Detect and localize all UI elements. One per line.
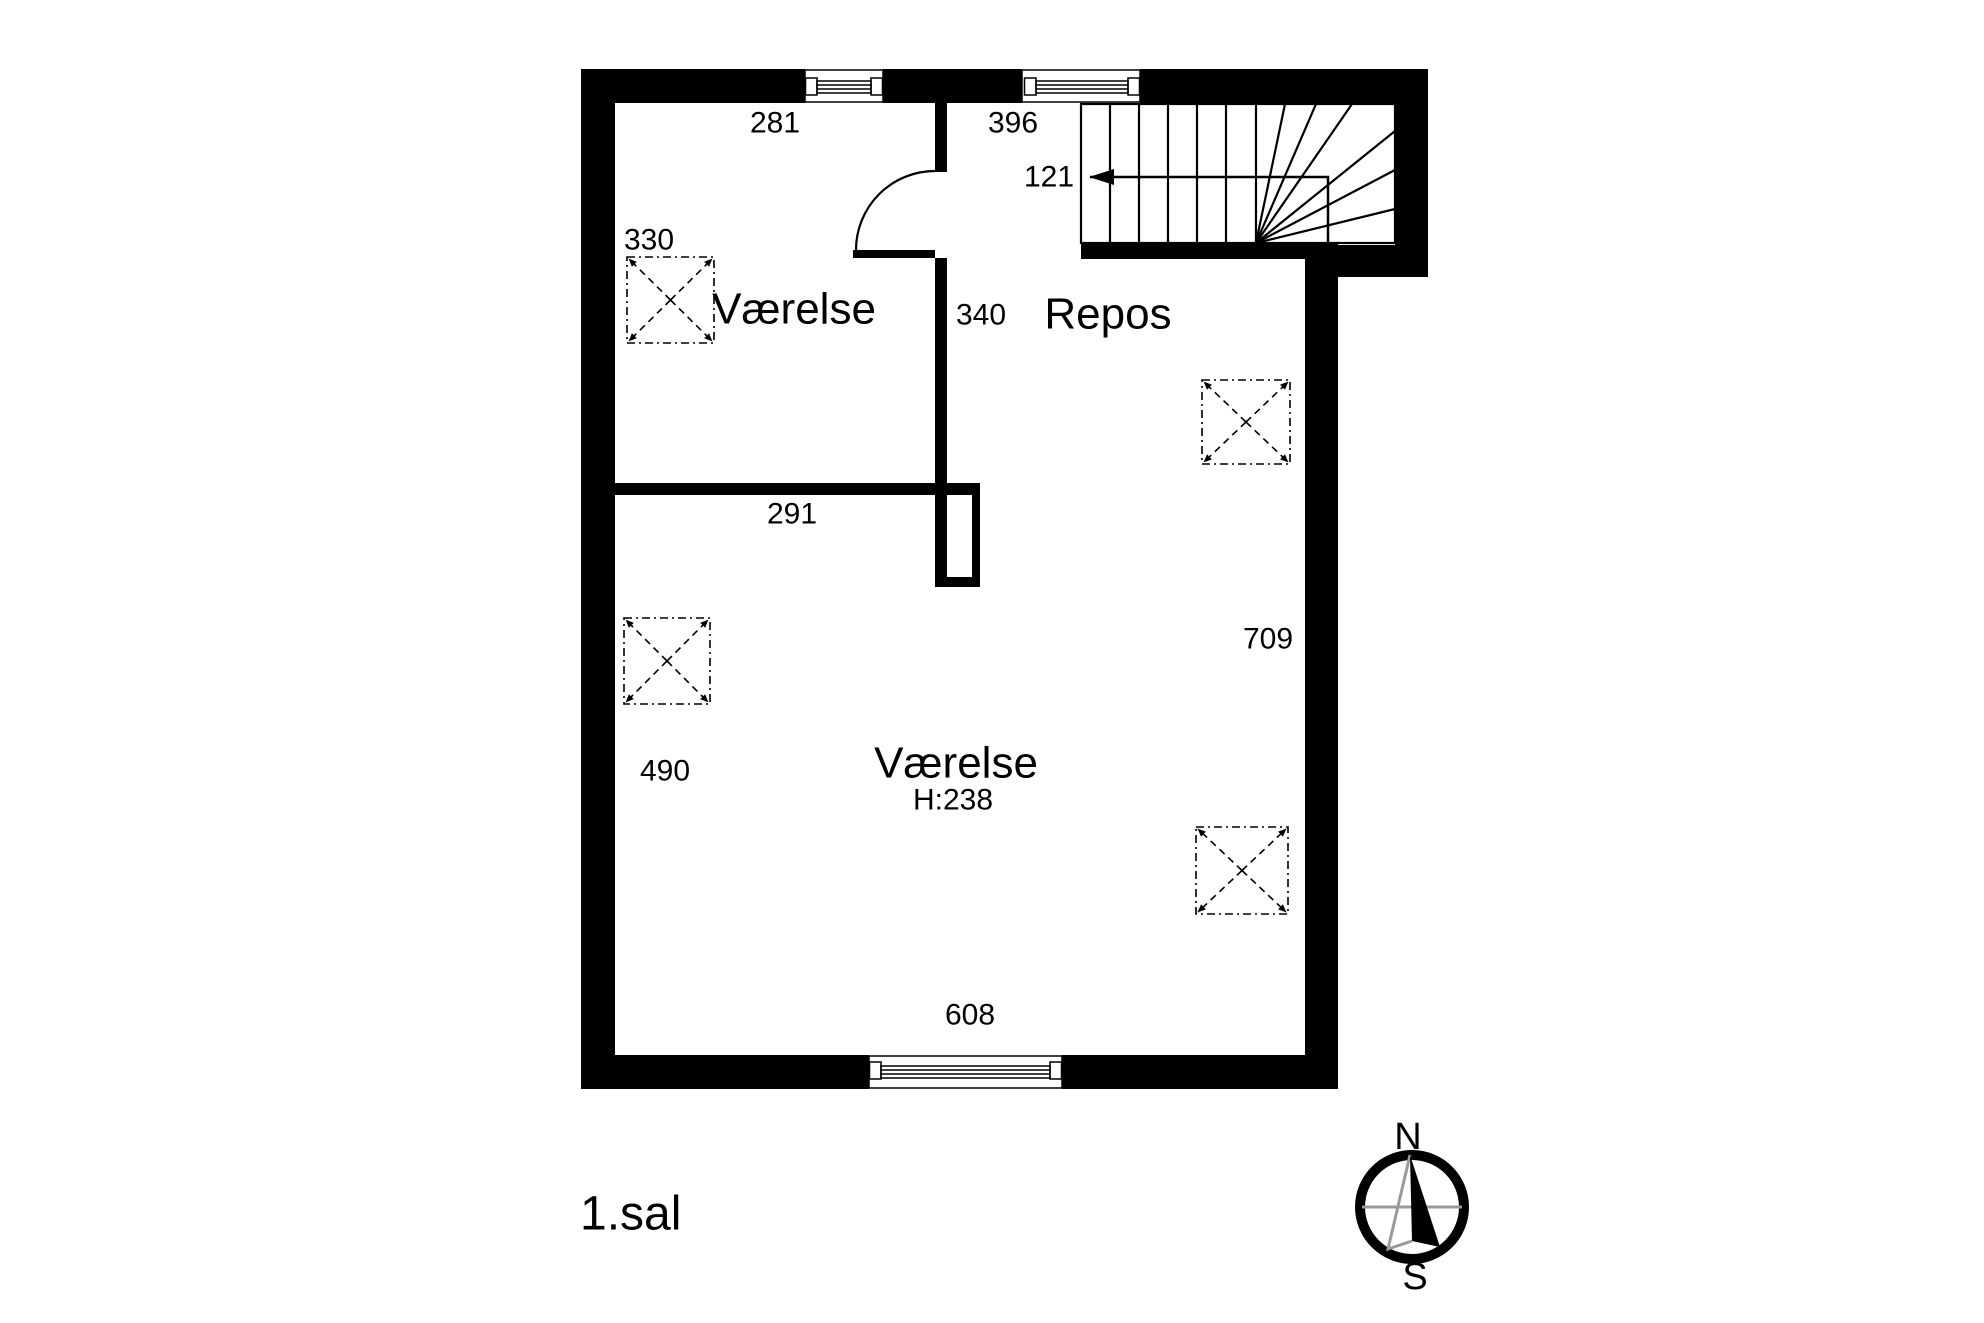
floor-plan-svg: 281 396 121 330 340 291 709 490 608 Være…: [0, 0, 1984, 1323]
dim-divider-wall: 291: [767, 498, 817, 531]
door-swing-arc: [856, 171, 935, 250]
dim-room-top-skylight: 330: [624, 224, 674, 257]
compass-south-label: S: [1402, 1256, 1427, 1298]
room-main-label: Værelse: [874, 739, 1038, 788]
window-jamb: [870, 1062, 882, 1079]
window-top-right: [1022, 70, 1140, 102]
window-glazing: [817, 81, 871, 93]
wall-top-segment-1: [581, 69, 805, 103]
staircase: [1081, 104, 1395, 243]
skylight-room-main-left: [624, 618, 710, 704]
skylight-landing: [1202, 380, 1290, 464]
outer-walls: [581, 69, 1428, 1089]
window-top-left: [805, 70, 883, 102]
compass-rose: N S: [1360, 1116, 1464, 1298]
dim-room-main-depth: 709: [1243, 623, 1293, 656]
wall-interior-vertical: [935, 258, 947, 483]
window-bottom: [869, 1056, 1062, 1088]
wall-bottom-segment-2: [1062, 1055, 1338, 1089]
stair-winder-treads: [1256, 104, 1395, 243]
dim-room-main-width: 490: [640, 755, 690, 788]
window-jamb: [806, 78, 818, 95]
window-glazing: [1036, 81, 1128, 93]
compass-needle: [1410, 1155, 1440, 1247]
floor-plan-canvas: 281 396 121 330 340 291 709 490 608 Være…: [0, 0, 1984, 1323]
wall-below-stairs: [1081, 243, 1305, 259]
wall-bottom-segment-1: [581, 1055, 869, 1089]
wall-door-stub: [935, 103, 947, 172]
wall-right-main: [1305, 243, 1338, 1089]
skylight-room-top: [627, 257, 714, 343]
door-leaf: [853, 250, 935, 258]
window-jamb: [1050, 1062, 1062, 1079]
dim-window-top-left: 281: [750, 107, 800, 140]
window-jamb: [1025, 78, 1037, 95]
window-glazing: [881, 1066, 1050, 1078]
skylight-room-main-right: [1196, 827, 1288, 914]
wall-top-segment-3: [1140, 69, 1428, 103]
compass-needle-outline: [1388, 1155, 1412, 1249]
dim-window-bottom: 608: [945, 999, 995, 1032]
duct-block-cavity: [947, 495, 972, 577]
wall-stairblock-bottom: [1338, 245, 1428, 277]
stair-outline: [1081, 104, 1395, 243]
wall-left: [581, 69, 615, 1089]
dim-stair-run: 121: [1024, 161, 1074, 194]
window-jamb: [1128, 78, 1140, 95]
dim-landing-depth: 340: [956, 299, 1006, 332]
wall-interior-horizontal: [615, 483, 935, 495]
room-top-label: Værelse: [712, 285, 876, 334]
stair-treads: [1110, 104, 1256, 243]
door-room-top: [853, 171, 935, 258]
landing-label: Repos: [1044, 290, 1171, 339]
window-jamb: [871, 78, 883, 95]
room-main-ceiling-height: H:238: [913, 784, 993, 817]
wall-top-segment-2: [883, 69, 1022, 103]
floor-label: 1.sal: [580, 1188, 681, 1241]
dim-window-top-right: 396: [988, 107, 1038, 140]
